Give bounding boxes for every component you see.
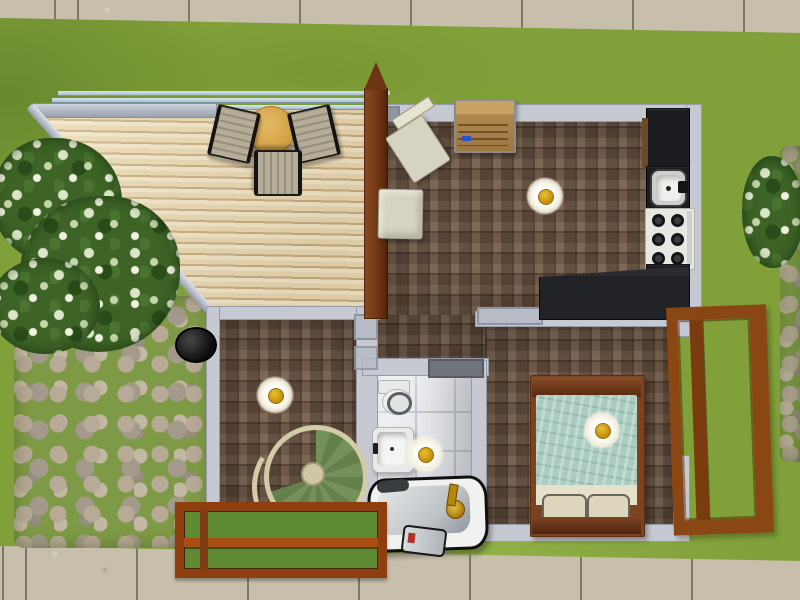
patio-chair-south[interactable]	[254, 150, 302, 196]
bed-footboard	[532, 517, 641, 534]
stove-burner	[652, 214, 665, 227]
stove-burner	[671, 214, 684, 227]
spiral-stair-post	[301, 462, 325, 486]
side-table[interactable]	[378, 189, 424, 240]
window-sill	[477, 307, 543, 325]
bookshelf-shelves	[458, 124, 508, 146]
kitchen-counter-north[interactable]	[646, 108, 690, 170]
bath-faucet	[373, 443, 378, 454]
game-viewport	[0, 0, 800, 600]
ceiling-lamp-bathroom[interactable]	[406, 435, 444, 473]
sidewalk-south	[0, 544, 800, 600]
barbecue-pot[interactable]	[175, 327, 217, 363]
ceiling-lamp-living[interactable]	[526, 177, 564, 215]
trash-can-label	[407, 533, 415, 544]
garden-planter[interactable]	[175, 502, 387, 578]
pedestal-sink-drain	[390, 447, 394, 451]
stove-control-strip	[687, 211, 692, 265]
sidewalk-north	[0, 0, 800, 36]
open-door[interactable]	[666, 304, 774, 535]
spine-wall-peak	[364, 62, 388, 90]
window-sill	[354, 346, 378, 370]
kitchen-faucet	[678, 181, 688, 193]
kitchen-sink-drain	[666, 186, 671, 191]
ceiling-lamp-stair-room[interactable]	[256, 376, 294, 414]
deck-railing-bar	[58, 91, 390, 96]
window-sill	[428, 359, 484, 378]
ceiling-lamp-bedroom[interactable]	[583, 411, 621, 449]
stove-burner	[671, 233, 684, 246]
bed-headboard	[532, 377, 641, 397]
stove-burner	[652, 233, 665, 246]
flowering-bush-east[interactable]	[742, 156, 800, 268]
bookshelf-book	[462, 136, 471, 141]
counter-wood-edge	[642, 118, 648, 170]
deck-edge-wall	[33, 103, 217, 118]
toilet-seat-ring	[387, 392, 412, 415]
